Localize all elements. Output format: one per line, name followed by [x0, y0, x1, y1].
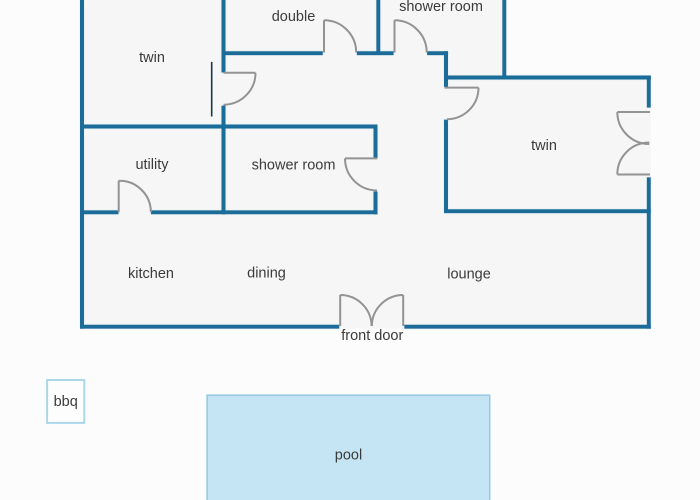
svg-text:utility: utility — [135, 157, 169, 173]
svg-text:shower room: shower room — [399, 0, 483, 15]
svg-text:bbq: bbq — [54, 394, 78, 410]
svg-text:twin: twin — [531, 138, 557, 154]
svg-text:front door: front door — [341, 328, 403, 344]
svg-text:shower room: shower room — [252, 158, 336, 174]
svg-text:twin: twin — [139, 50, 165, 66]
svg-text:lounge: lounge — [447, 267, 491, 283]
svg-text:kitchen: kitchen — [128, 266, 174, 282]
svg-text:pool: pool — [335, 448, 362, 464]
svg-text:double: double — [272, 9, 316, 25]
svg-text:dining: dining — [247, 266, 286, 282]
